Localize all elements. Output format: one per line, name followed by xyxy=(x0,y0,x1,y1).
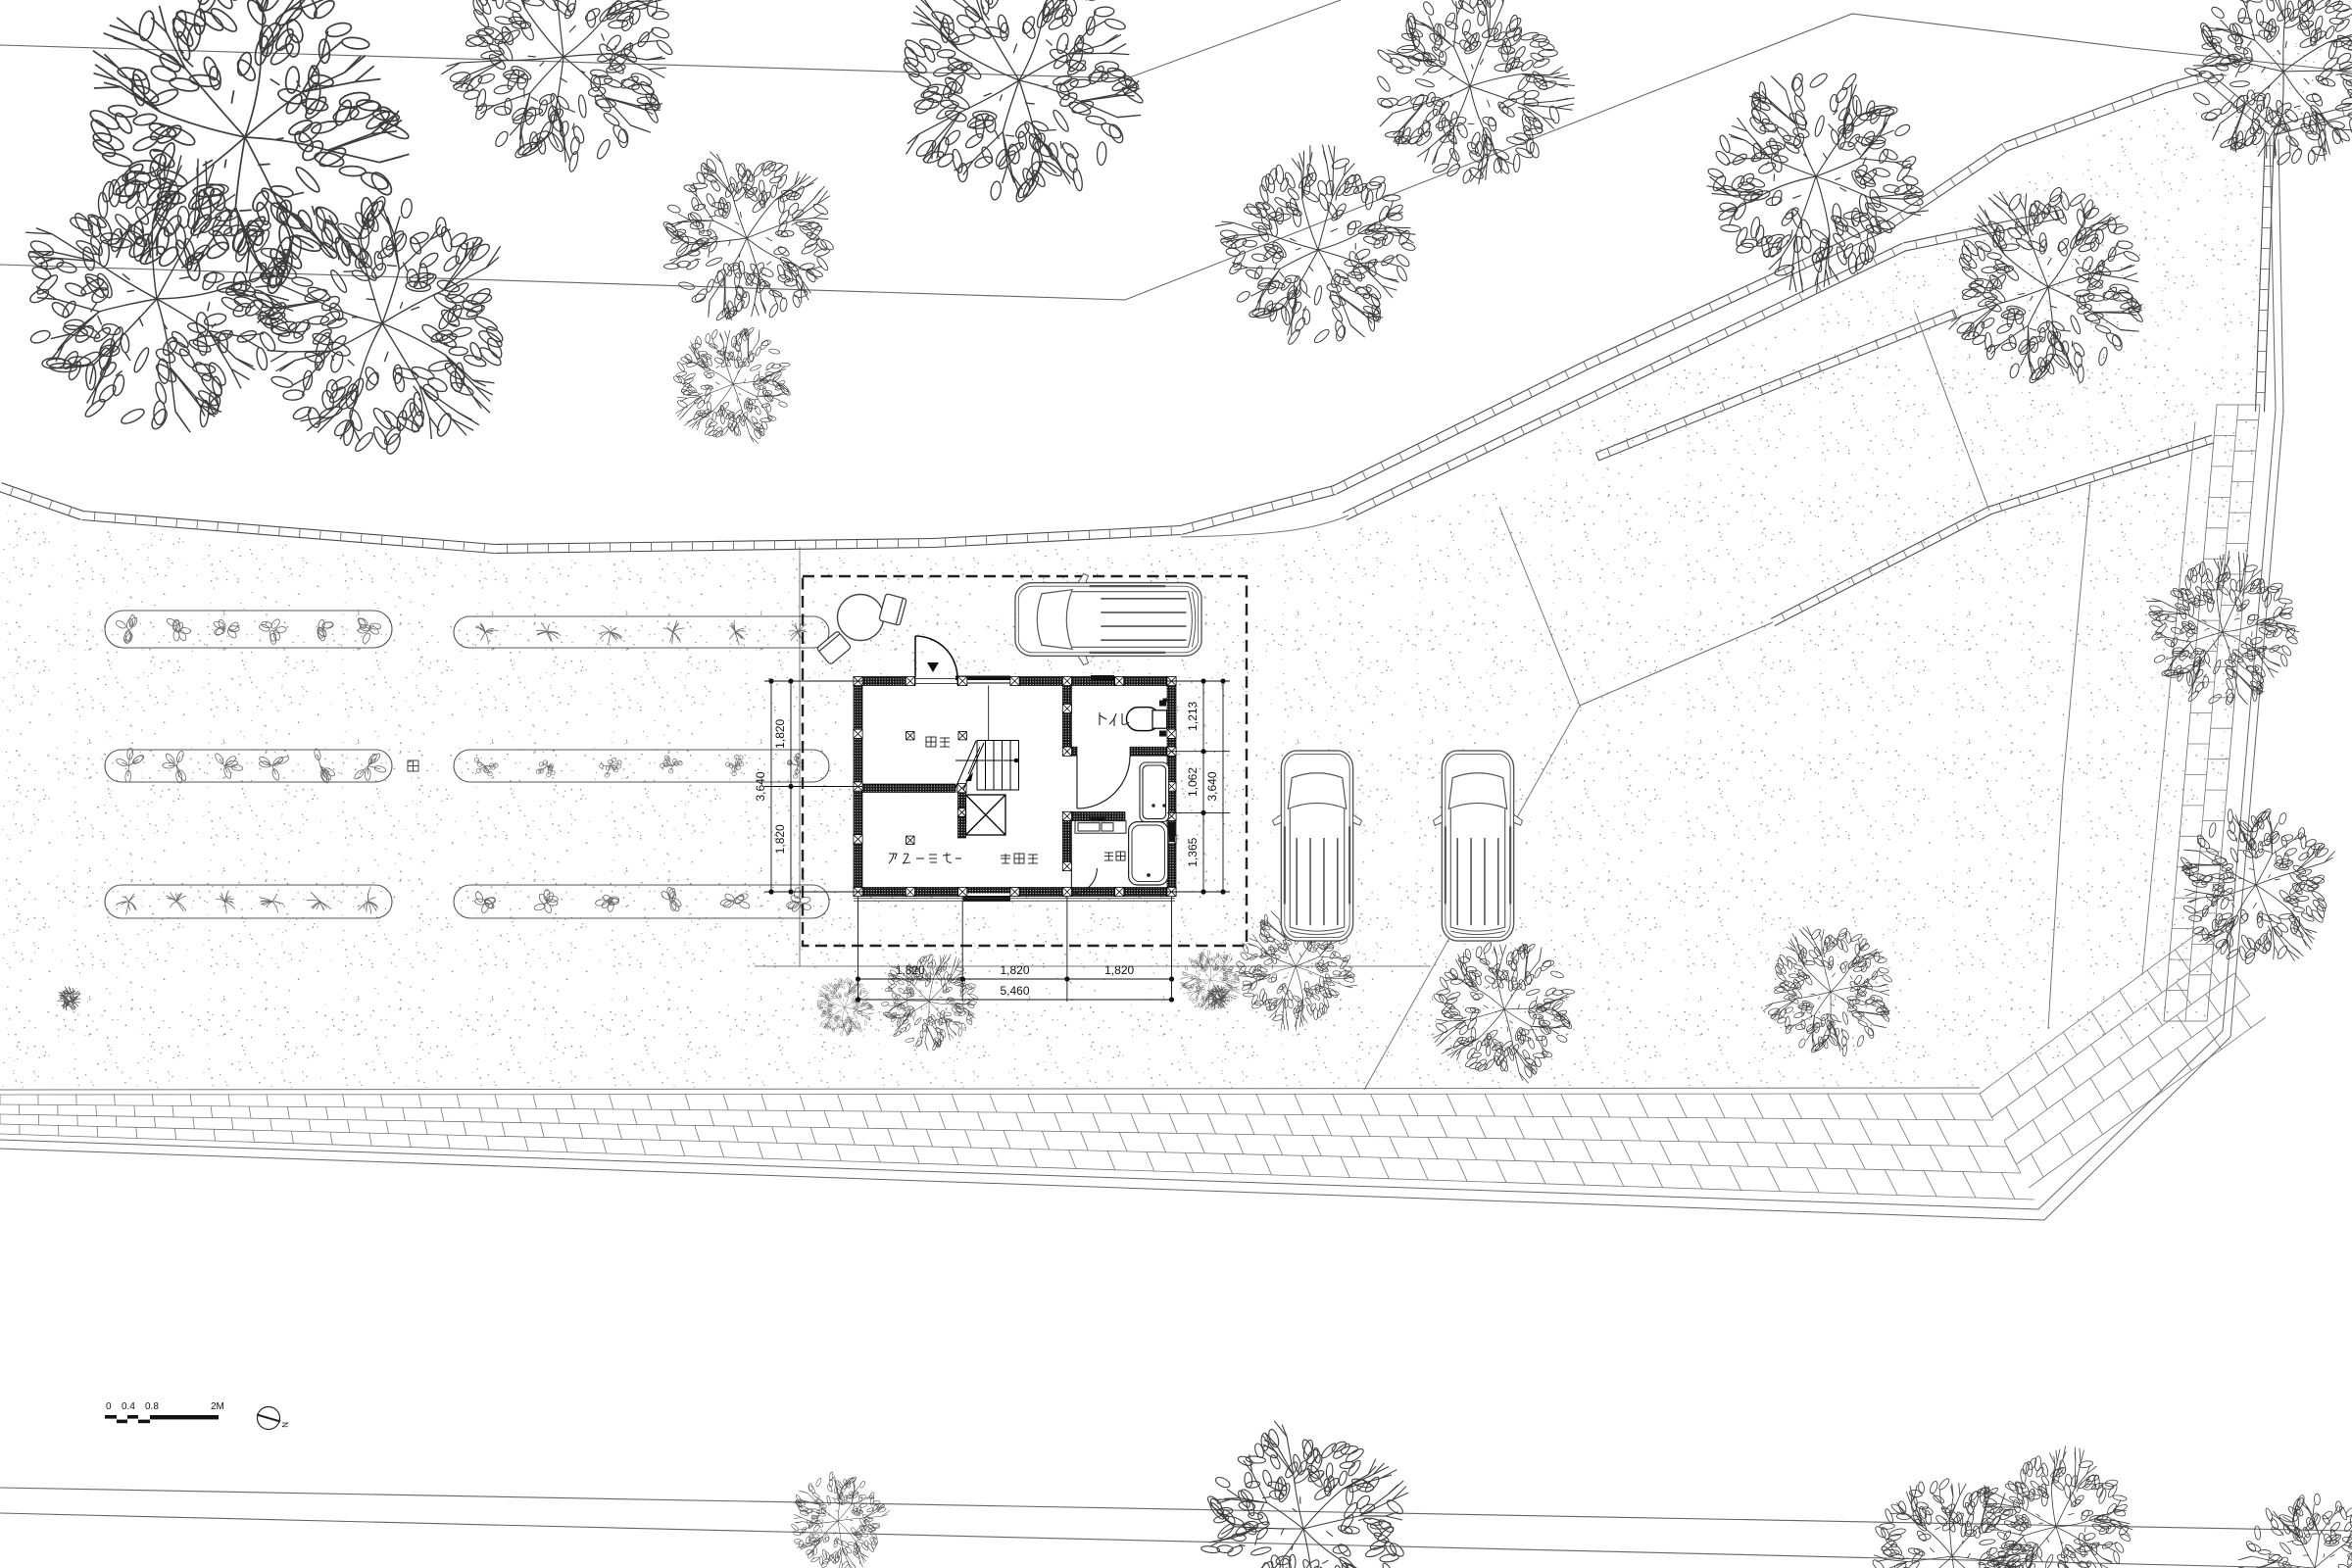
svg-text:1,062: 1,062 xyxy=(1186,767,1200,797)
svg-text:1,820: 1,820 xyxy=(773,718,787,748)
svg-text:1,365: 1,365 xyxy=(1186,837,1200,866)
svg-text:5,460: 5,460 xyxy=(1000,984,1029,998)
svg-text:0: 0 xyxy=(106,1401,112,1412)
svg-text:1,820: 1,820 xyxy=(1104,963,1134,977)
svg-text:3,640: 3,640 xyxy=(1205,771,1219,801)
svg-text:1,213: 1,213 xyxy=(1186,701,1200,730)
svg-text:3,640: 3,640 xyxy=(754,771,767,801)
svg-text:2M: 2M xyxy=(211,1401,224,1412)
svg-text:1,820: 1,820 xyxy=(1000,963,1029,977)
svg-text:N: N xyxy=(280,1422,289,1428)
svg-text:1,820: 1,820 xyxy=(773,824,787,854)
svg-text:1,820: 1,820 xyxy=(896,963,925,977)
svg-text:0.4: 0.4 xyxy=(122,1401,135,1412)
svg-text:0.8: 0.8 xyxy=(145,1401,159,1412)
